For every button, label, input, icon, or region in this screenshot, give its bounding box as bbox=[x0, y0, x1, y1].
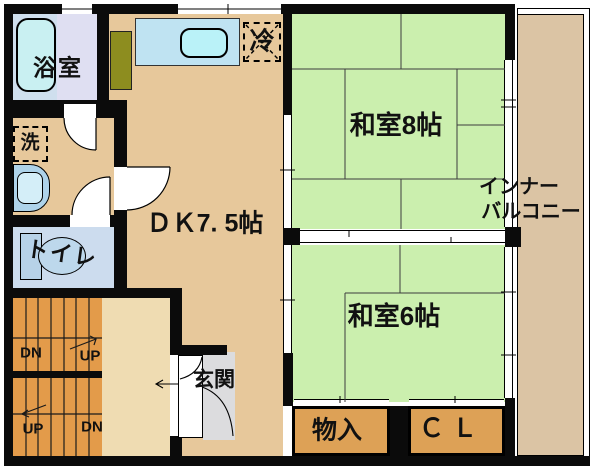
wall-entrance-top bbox=[170, 345, 227, 355]
opening-dk-door bbox=[114, 167, 127, 210]
wall-bottom bbox=[4, 456, 590, 466]
wall-washroom-right-lower bbox=[114, 210, 127, 298]
opening-toilet-door bbox=[70, 215, 110, 227]
pillar-rooms-left bbox=[283, 228, 300, 245]
japanese-room-6-label: 和室6帖 bbox=[348, 303, 440, 329]
window-kitchen-top bbox=[178, 4, 281, 14]
wall-closet-divider bbox=[388, 406, 408, 456]
wall-stairs-top bbox=[4, 288, 182, 298]
stairs-mid-landing-wall bbox=[13, 371, 102, 378]
wall-right-upper bbox=[505, 4, 515, 60]
dining-kitchen-label: ＤＫ7. 5帖 bbox=[147, 212, 264, 237]
wall-washroom-right-upper bbox=[114, 118, 127, 167]
entrance-label: 玄関 bbox=[193, 370, 235, 391]
entrance-door-panel bbox=[178, 355, 203, 438]
window-bathroom-top bbox=[62, 4, 92, 14]
stairs-lower-dn-label: DN bbox=[81, 420, 103, 435]
laundry-label: 洗 bbox=[20, 134, 39, 153]
pillar-rooms-right bbox=[505, 227, 521, 247]
floor-plan: 浴室 洗 トイレ ＤＫ7. 5帖 冷 和室8帖 和室6帖 インナー バルコニー … bbox=[0, 0, 600, 470]
opening-bathroom-door bbox=[64, 104, 96, 118]
wall-hall-right-lower bbox=[170, 436, 182, 466]
wall-bathroom-right bbox=[97, 14, 109, 102]
wall-hall-right-upper bbox=[170, 298, 182, 345]
inner-balcony-label-line1: インナー bbox=[479, 177, 559, 197]
window-room6-balcony bbox=[504, 247, 513, 398]
wall-right-lower bbox=[505, 398, 515, 466]
kitchen-sink bbox=[180, 28, 228, 58]
wall-dk-rooms-upper bbox=[283, 14, 292, 115]
storage-label: 物入 bbox=[312, 419, 362, 444]
hallway-floor bbox=[102, 298, 170, 456]
sliding-door-room8-room6 bbox=[300, 230, 505, 243]
refrigerator-label: 冷 bbox=[249, 30, 274, 55]
sliding-door-dk-room6 bbox=[283, 245, 292, 353]
wall-dk-rooms-lower bbox=[283, 353, 293, 406]
stairs-upper-up-label: UP bbox=[80, 349, 101, 364]
wash-basin-bowl bbox=[17, 172, 43, 204]
stairs-upper-dn-label: DN bbox=[20, 346, 42, 361]
inner-balcony-floor bbox=[517, 14, 584, 456]
entrance-step bbox=[203, 352, 235, 440]
stairs-lower-up-label: UP bbox=[23, 422, 44, 437]
wall-left bbox=[4, 4, 13, 462]
kitchen-olive-counter bbox=[110, 31, 132, 90]
bathroom-label: 浴室 bbox=[33, 57, 83, 80]
inner-balcony-label-line2: バルコニー bbox=[481, 202, 581, 222]
sliding-door-dk-room8 bbox=[283, 115, 292, 228]
closet-label: ＣＬ bbox=[419, 417, 485, 442]
japanese-room-8-label: 和室8帖 bbox=[350, 112, 442, 138]
